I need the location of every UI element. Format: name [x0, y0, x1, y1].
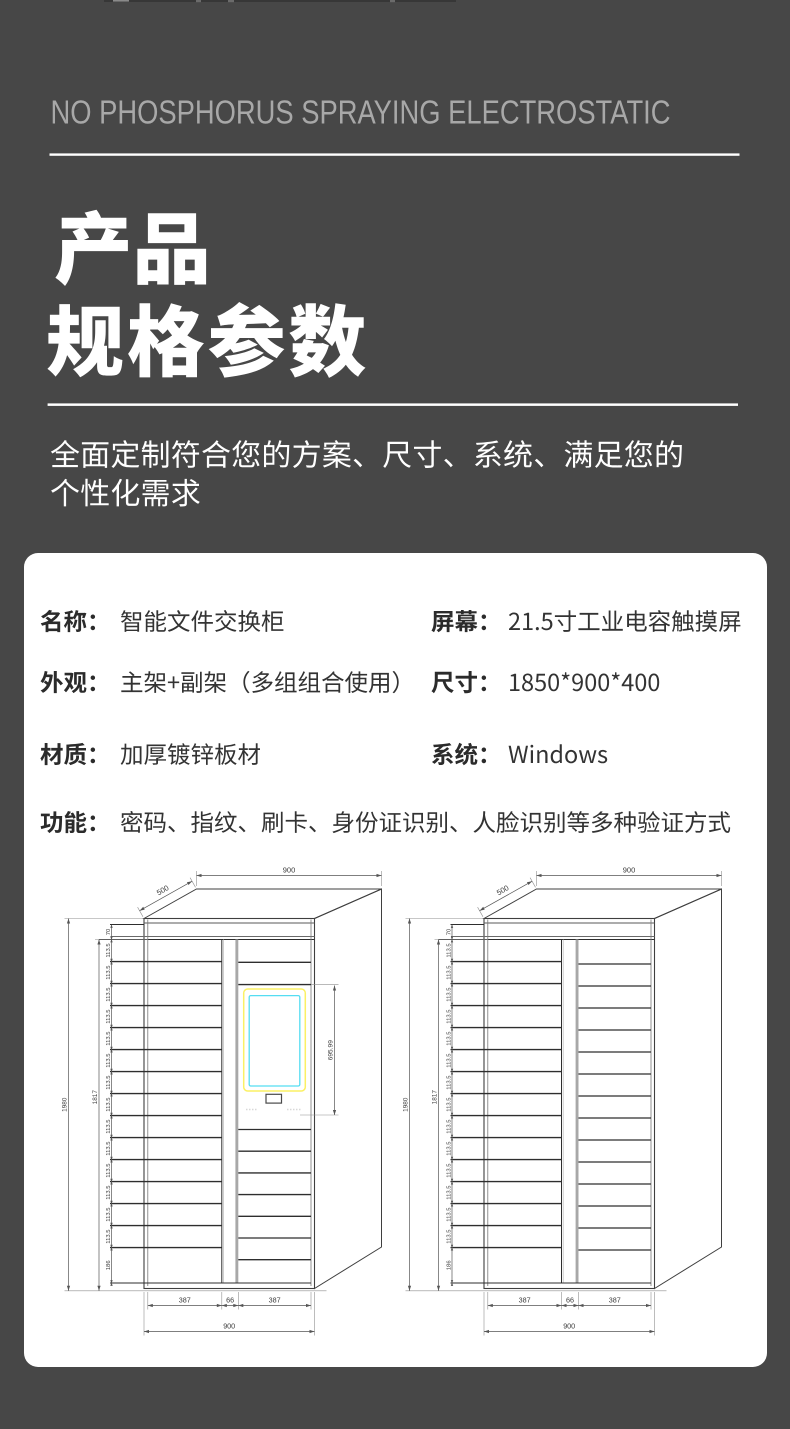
- svg-text:900: 900: [623, 866, 636, 875]
- svg-text:387: 387: [609, 1296, 621, 1305]
- svg-text:1817: 1817: [432, 1090, 439, 1105]
- svg-text:387: 387: [269, 1296, 281, 1305]
- svg-text:113.5: 113.5: [446, 1185, 452, 1200]
- svg-text:387: 387: [179, 1296, 191, 1305]
- svg-text:695.99: 695.99: [328, 1040, 335, 1061]
- svg-text:113.5: 113.5: [446, 1031, 452, 1046]
- svg-text:900: 900: [283, 866, 296, 875]
- svg-text:900: 900: [223, 1322, 235, 1331]
- svg-text:1817: 1817: [92, 1090, 99, 1105]
- svg-text:113.5: 113.5: [106, 1141, 112, 1156]
- svg-text:113.5: 113.5: [106, 1075, 112, 1090]
- svg-text:113.5: 113.5: [446, 1097, 452, 1112]
- svg-text:113.5: 113.5: [446, 1075, 452, 1090]
- svg-text:113.5: 113.5: [446, 965, 452, 980]
- svg-text:113.5: 113.5: [106, 1009, 112, 1024]
- svg-text:113.5: 113.5: [446, 1163, 452, 1178]
- svg-text:113.5: 113.5: [446, 1053, 452, 1068]
- svg-text:113.5: 113.5: [106, 1185, 112, 1200]
- svg-text:113.5: 113.5: [446, 1229, 452, 1244]
- svg-text:66: 66: [226, 1296, 234, 1305]
- svg-text:NO PHOSPHORUS SPRAYING ELECTRO: NO PHOSPHORUS SPRAYING ELECTROSTATIC: [51, 93, 671, 130]
- svg-text:70: 70: [446, 928, 452, 935]
- svg-text:66: 66: [566, 1296, 574, 1305]
- svg-text:113.5: 113.5: [446, 1207, 452, 1222]
- svg-text:113.5: 113.5: [446, 987, 452, 1002]
- svg-text:387: 387: [519, 1296, 531, 1305]
- svg-text:113.5: 113.5: [106, 987, 112, 1002]
- svg-text:113.5: 113.5: [446, 1141, 452, 1156]
- svg-text:113.5: 113.5: [106, 1119, 112, 1134]
- svg-text:113.5: 113.5: [106, 1031, 112, 1046]
- svg-text:113.5: 113.5: [106, 965, 112, 980]
- svg-text:70: 70: [106, 928, 112, 935]
- svg-text:186: 186: [106, 1260, 112, 1271]
- svg-text:113.5: 113.5: [106, 1053, 112, 1068]
- svg-text:113.5: 113.5: [446, 943, 452, 958]
- svg-text:1980: 1980: [403, 1097, 410, 1112]
- svg-text:113.5: 113.5: [106, 943, 112, 958]
- svg-text:113.5: 113.5: [446, 1119, 452, 1134]
- svg-text:900: 900: [563, 1322, 575, 1331]
- svg-text:186: 186: [446, 1260, 452, 1271]
- svg-text:113.5: 113.5: [106, 1229, 112, 1244]
- svg-text:1980: 1980: [62, 1097, 69, 1112]
- svg-text:113.5: 113.5: [106, 1207, 112, 1222]
- svg-text:113.5: 113.5: [446, 1009, 452, 1024]
- svg-text:113.5: 113.5: [106, 1163, 112, 1178]
- svg-text:113.5: 113.5: [106, 1097, 112, 1112]
